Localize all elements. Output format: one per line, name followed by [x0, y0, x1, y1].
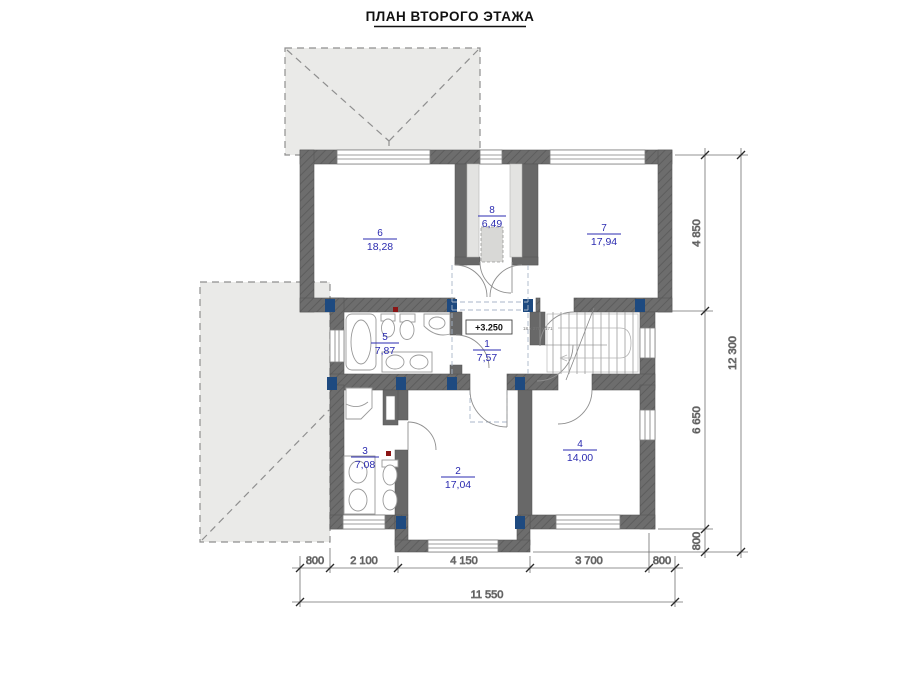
stair-break-line [566, 308, 594, 380]
room-label-2: 2 17,04 [441, 466, 475, 491]
dim-label: 4 850 [691, 219, 703, 247]
partition-room8-room7 [522, 164, 538, 265]
roof-left-slab [200, 282, 330, 542]
room-area: 18,28 [367, 241, 393, 253]
window [640, 410, 655, 440]
room-number: 5 [382, 332, 388, 343]
chimney-flue [481, 227, 503, 262]
dim-label: 6 650 [691, 406, 703, 434]
corridor-guides [452, 265, 528, 422]
window [480, 150, 502, 164]
wall-lining-strip [510, 164, 522, 257]
window [640, 328, 655, 358]
room-area: 17,04 [445, 479, 471, 491]
room-label-4: 4 14,00 [563, 439, 597, 464]
staircase [545, 308, 638, 380]
sink [386, 355, 404, 369]
roof-outline-top [285, 48, 480, 155]
room-label-8: 8 6,49 [478, 205, 506, 230]
room-area: 7,08 [355, 459, 376, 471]
dim-label: 800 [691, 532, 703, 550]
sink [349, 489, 367, 511]
riser-marker [393, 307, 398, 312]
room-number: 2 [455, 466, 461, 477]
stair-treads-lower [553, 345, 601, 374]
stair-landing-treads [609, 312, 633, 374]
partition-room6-room8 [455, 164, 467, 265]
dim-label: 3 700 [575, 555, 603, 567]
door-swing-room6 [455, 265, 487, 297]
page-title: ПЛАН ВТОРОГО ЭТАЖА [366, 9, 535, 24]
column-marker [515, 516, 525, 529]
room-label-7: 7 17,94 [587, 223, 621, 248]
duct-shaft-opening [386, 396, 395, 420]
door-swing-room3 [408, 422, 436, 450]
room-number: 6 [377, 228, 383, 239]
wall-right-lower [640, 385, 655, 529]
column-marker [635, 299, 645, 312]
room-area: 6,49 [482, 218, 503, 230]
door-swing-room4 [558, 390, 592, 424]
window [330, 330, 344, 362]
stair-treads-upper [553, 312, 601, 345]
floor-plan-drawing: 18 x 270 x 171 6 18,28 8 [0, 0, 899, 675]
window [556, 515, 620, 529]
room-label-3: 3 7,08 [351, 446, 379, 471]
window [343, 515, 385, 529]
sink [410, 355, 428, 369]
room8-bottom-wall [455, 257, 480, 265]
elevation-value: +3.250 [475, 323, 503, 333]
drawing-title: ПЛАН ВТОРОГО ЭТАЖА [366, 9, 535, 27]
dim-label-total: 11 550 [471, 589, 504, 601]
room-number: 7 [601, 223, 607, 234]
wall-mid-horizontal [300, 298, 455, 312]
wall-lining-strip [467, 164, 479, 257]
window [550, 150, 645, 164]
riser-marker [386, 451, 391, 456]
column-marker [515, 377, 525, 390]
dim-label: 2 100 [350, 555, 378, 567]
elevation-marker: +3.250 [466, 320, 512, 334]
room8-bottom-wall [512, 257, 538, 265]
room-area: 7,87 [375, 345, 396, 357]
wall-mid-horizontal [574, 298, 672, 312]
wall-right-upper [658, 150, 672, 312]
column-marker [396, 516, 406, 529]
wall-left-lower [330, 385, 344, 529]
door-swing-room2 [470, 390, 507, 427]
room-number: 4 [577, 439, 583, 450]
dim-label-total: 12 300 [727, 336, 739, 370]
dim-label: 4 150 [450, 555, 478, 567]
roof-top-slab [285, 48, 480, 155]
room-area: 7,57 [477, 352, 498, 364]
bathtub-basin [351, 320, 371, 364]
dim-label: 800 [306, 555, 324, 567]
room-area: 17,94 [591, 236, 617, 248]
column-marker [447, 377, 457, 390]
wall-left-upper [300, 150, 314, 312]
room-number: 8 [489, 205, 495, 216]
window [337, 150, 430, 164]
window [428, 540, 498, 552]
column-marker [325, 299, 335, 312]
wall-mid-pier [536, 298, 540, 312]
toilet [383, 465, 397, 485]
column-marker [396, 377, 406, 390]
corner-sink-basin [429, 317, 445, 329]
toilet [400, 321, 414, 340]
room-area: 14,00 [567, 452, 593, 464]
column-marker [327, 377, 337, 390]
room-label-6: 6 18,28 [363, 228, 397, 253]
room-number: 3 [362, 446, 368, 457]
door-swing-room8 [480, 262, 511, 293]
wall-band-horizontal [507, 374, 558, 390]
room-number: 1 [484, 339, 490, 350]
floor-plan-page: 18 x 270 x 171 6 18,28 8 [0, 0, 899, 675]
partition-room2-room4 [518, 390, 532, 515]
dim-label: 800 [653, 555, 671, 567]
stair-note: 18 x 270 x 171 [523, 326, 553, 331]
bidet [383, 490, 397, 510]
roof-outline-left [200, 282, 330, 542]
